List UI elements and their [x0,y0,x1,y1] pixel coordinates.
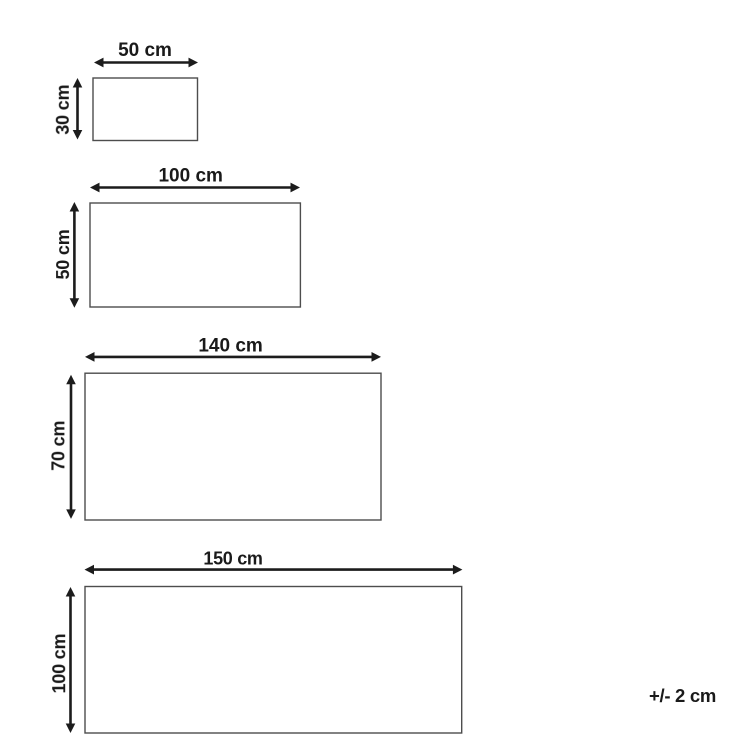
svg-text:30 cm: 30 cm [53,85,73,135]
svg-text:150 cm: 150 cm [203,549,262,569]
svg-text:100 cm: 100 cm [49,634,69,694]
svg-text:50 cm: 50 cm [118,40,172,61]
svg-text:50 cm: 50 cm [53,229,73,279]
svg-text:100 cm: 100 cm [158,166,222,187]
svg-text:140 cm: 140 cm [198,336,262,357]
svg-text:+/- 2 cm: +/- 2 cm [649,685,716,706]
svg-text:70 cm: 70 cm [48,421,68,471]
